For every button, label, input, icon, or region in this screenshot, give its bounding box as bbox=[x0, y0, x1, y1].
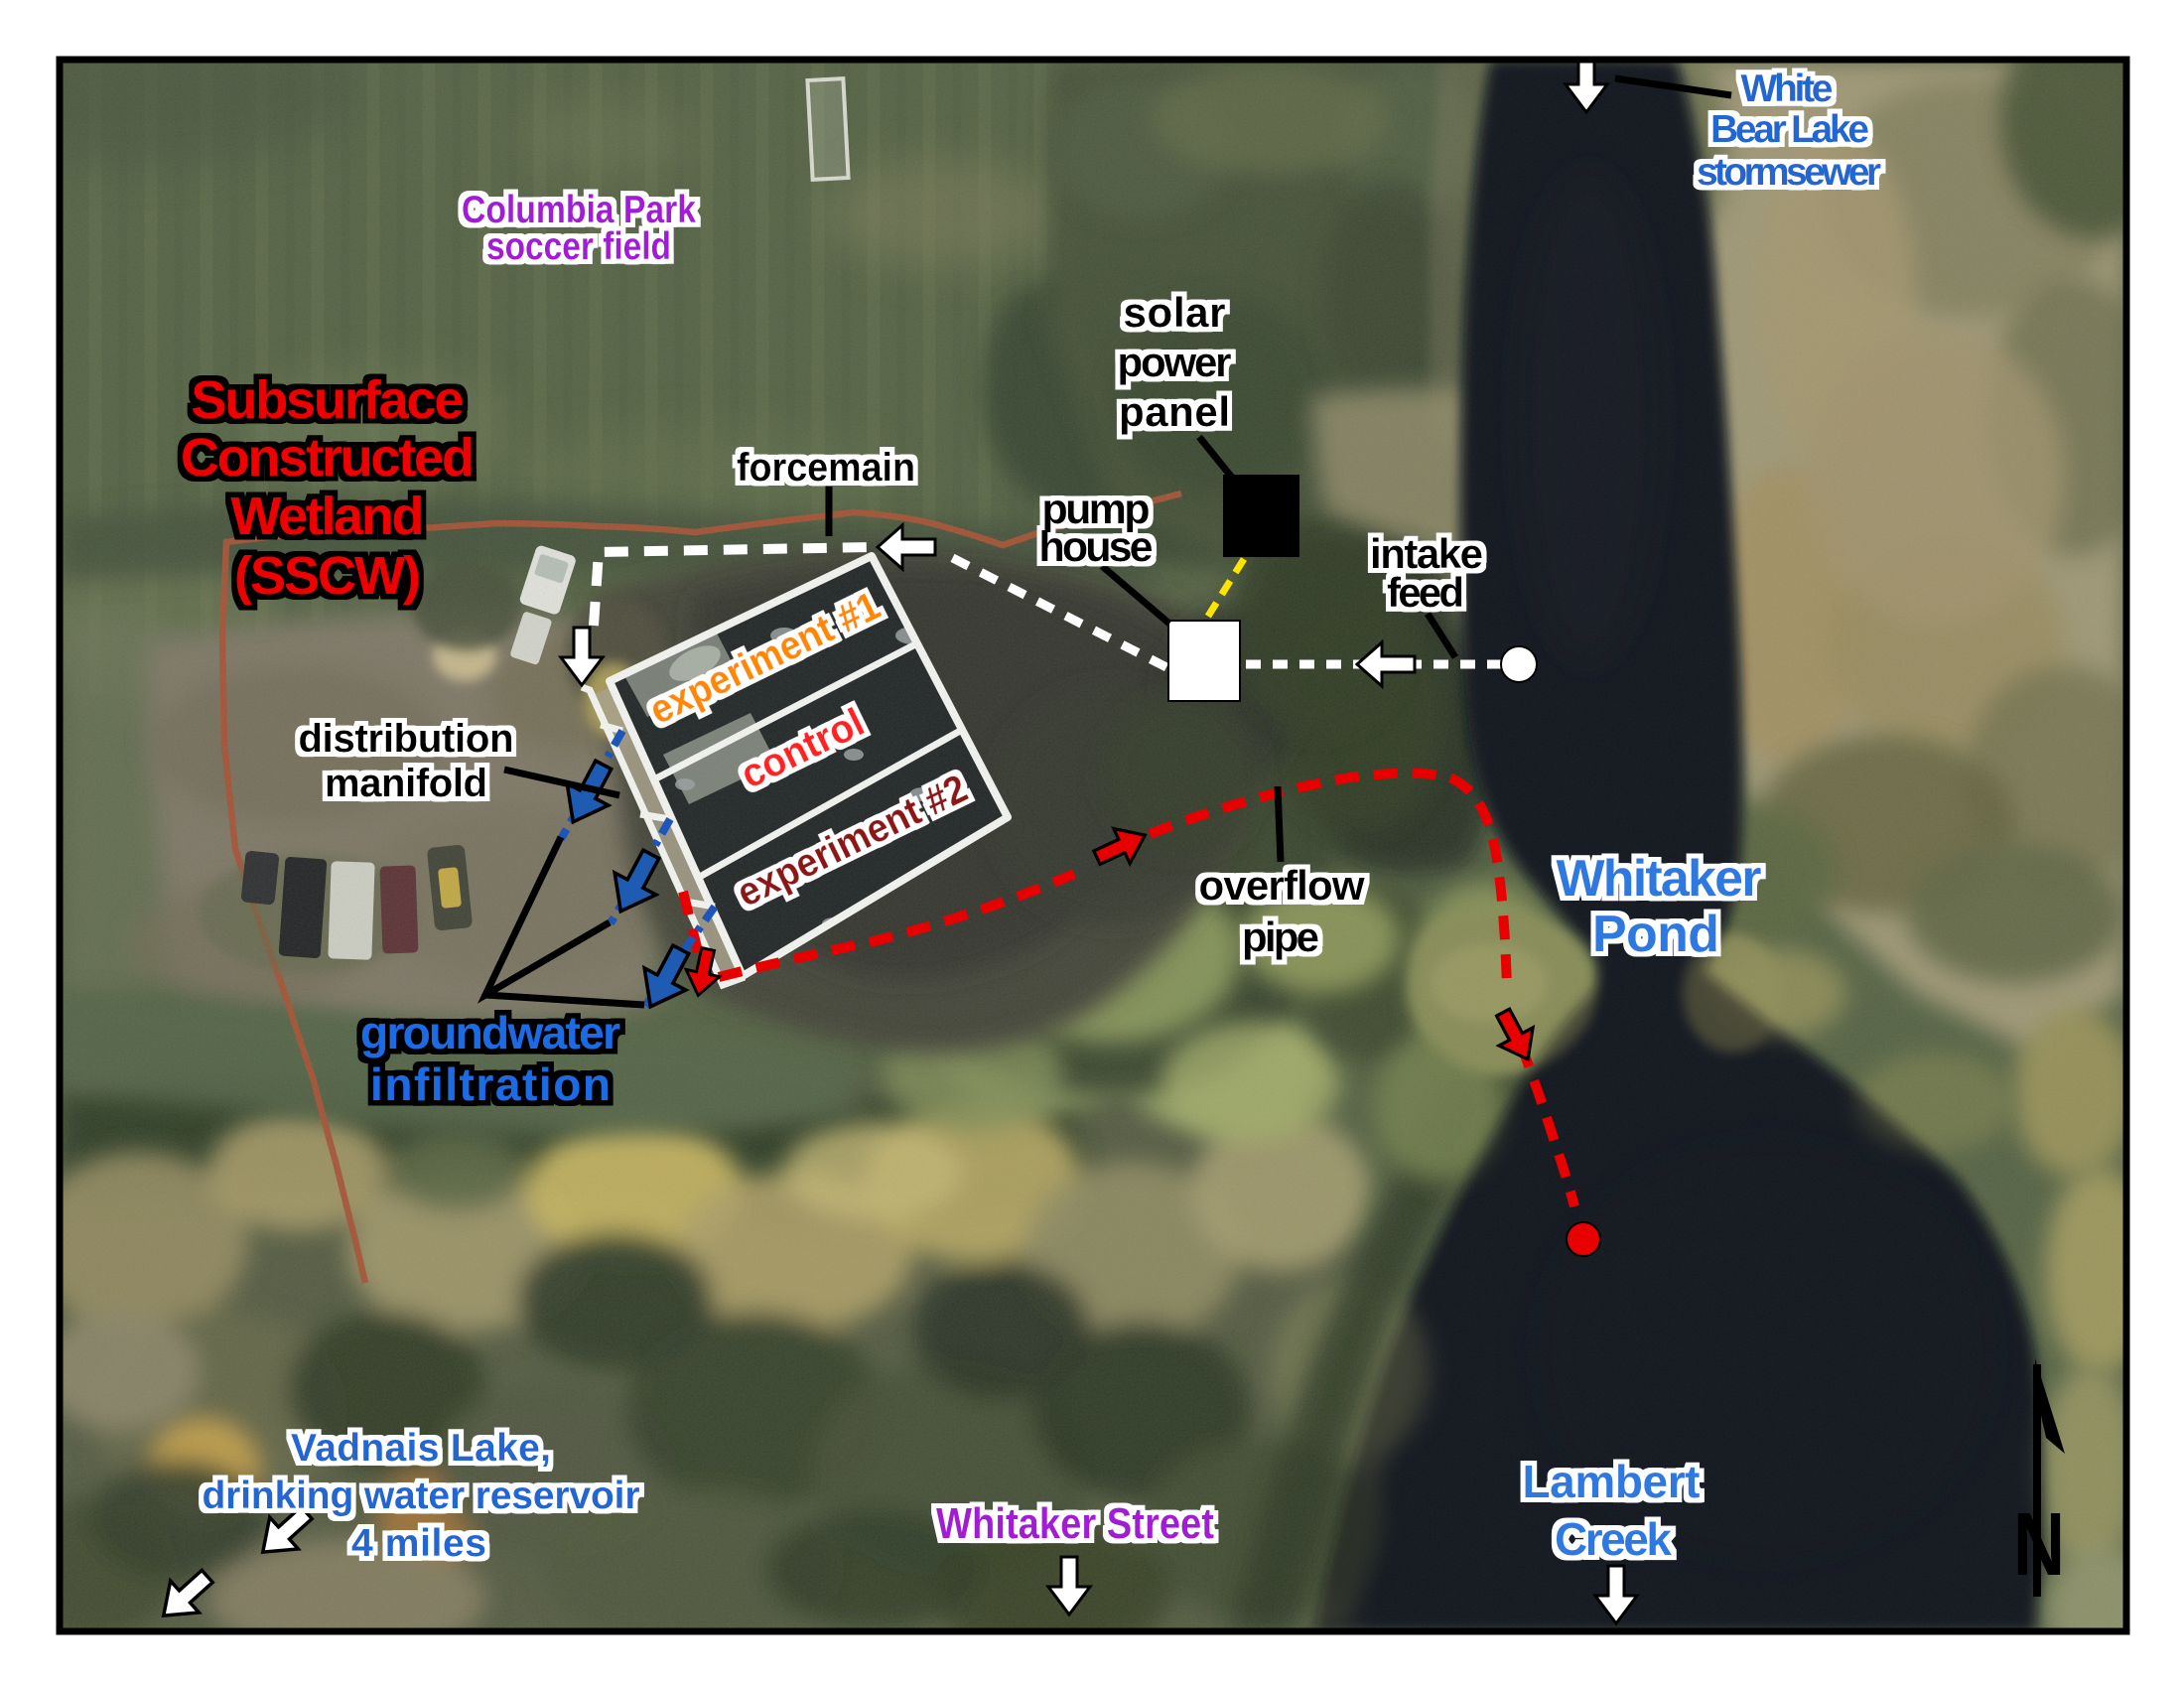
svg-text:Creek: Creek bbox=[1555, 1513, 1672, 1565]
svg-text:overflow: overflow bbox=[1199, 862, 1365, 909]
svg-text:Constructed: Constructed bbox=[181, 428, 475, 488]
svg-text:Lambert: Lambert bbox=[1523, 1456, 1701, 1507]
svg-text:power: power bbox=[1118, 339, 1232, 385]
svg-text:White: White bbox=[1741, 68, 1834, 110]
svg-text:manifold: manifold bbox=[325, 762, 487, 805]
svg-text:Bear Lake: Bear Lake bbox=[1710, 108, 1869, 151]
svg-text:4 miles: 4 miles bbox=[351, 1522, 486, 1565]
svg-text:forcemain: forcemain bbox=[737, 446, 915, 490]
svg-text:Wetland: Wetland bbox=[231, 487, 425, 546]
svg-text:feed: feed bbox=[1387, 569, 1464, 616]
svg-text:N: N bbox=[2013, 1495, 2065, 1595]
svg-text:Whitaker: Whitaker bbox=[1557, 850, 1762, 908]
svg-text:Pond: Pond bbox=[1592, 906, 1719, 963]
svg-text:Subsurface: Subsurface bbox=[192, 370, 465, 430]
svg-text:infiltration: infiltration bbox=[370, 1058, 611, 1110]
svg-text:house: house bbox=[1039, 523, 1154, 571]
svg-text:(SSCW): (SSCW) bbox=[234, 546, 421, 606]
svg-text:pipe: pipe bbox=[1242, 914, 1319, 960]
svg-text:stormsewer: stormsewer bbox=[1697, 151, 1881, 194]
svg-text:groundwater: groundwater bbox=[360, 1007, 620, 1058]
svg-text:drinking water reservoir: drinking water reservoir bbox=[203, 1475, 640, 1517]
svg-text:solar: solar bbox=[1124, 289, 1226, 336]
svg-text:Whitaker Street: Whitaker Street bbox=[936, 1499, 1214, 1548]
svg-text:distribution: distribution bbox=[299, 717, 514, 761]
svg-text:Vadnais Lake,: Vadnais Lake, bbox=[291, 1427, 551, 1470]
svg-text:panel: panel bbox=[1119, 388, 1230, 435]
svg-text:soccer field: soccer field bbox=[486, 225, 671, 268]
